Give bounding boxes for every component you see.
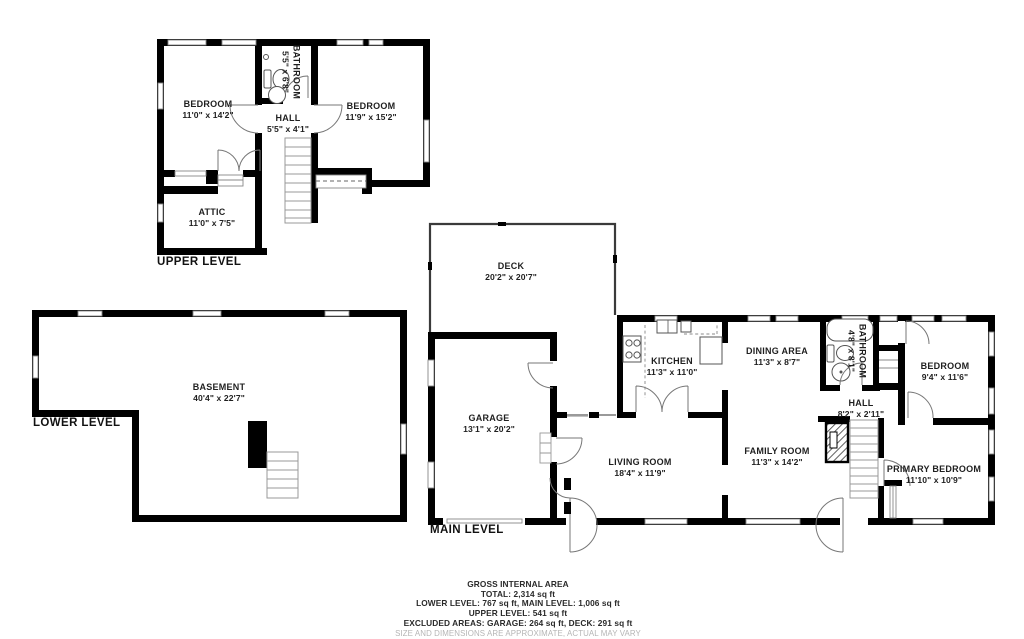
upper-level-label: UPPER LEVEL xyxy=(157,256,241,268)
room-label-main-bathroom: BATHROOM 4'8" x 8'1" xyxy=(847,324,868,378)
upper-closet xyxy=(218,175,243,186)
upper-staircase xyxy=(285,138,311,223)
room-label-dining-area: DINING AREA 11'3" x 8'7" xyxy=(746,346,808,367)
room-label-family-room: FAMILY ROOM 11'3" x 14'2" xyxy=(744,446,809,467)
area-summary-disclaimer: SIZE AND DIMENSIONS ARE APPROXIMATE, ACT… xyxy=(318,629,718,639)
room-label-main-bedroom: BEDROOM 9'4" x 11'6" xyxy=(921,361,970,382)
area-summary-excluded: EXCLUDED AREAS: GARAGE: 264 sq ft, DECK:… xyxy=(318,619,718,629)
floor-plan-canvas: BEDROOM 11'0" x 14'2" BATHROOM 5'5" x 6'… xyxy=(0,0,1024,639)
kitchen-sink-icon xyxy=(657,320,677,333)
room-label-upper-hall: HALL 5'5" x 4'1" xyxy=(267,113,309,134)
entry-steps xyxy=(540,433,551,463)
room-label-upper-bathroom: BATHROOM 5'5" x 6'8" xyxy=(281,45,302,99)
room-label-upper-bedroom-right: BEDROOM 11'9" x 15'2" xyxy=(345,101,396,122)
lower-level-walls xyxy=(32,310,407,522)
lower-level-label: LOWER LEVEL xyxy=(33,417,120,429)
lower-staircase xyxy=(267,452,298,498)
room-label-attic: ATTIC 11'0" x 7'5" xyxy=(189,207,235,228)
toilet-tank-icon xyxy=(264,70,271,88)
faucet-icon xyxy=(264,55,269,60)
room-label-garage: GARAGE 13'1" x 20'2" xyxy=(463,413,515,434)
room-label-kitchen: KITCHEN 11'3" x 11'0" xyxy=(647,356,698,377)
floor-plan-graphics xyxy=(0,0,1024,639)
room-label-living-room: LIVING ROOM 18'4" x 11'9" xyxy=(608,457,671,478)
room-label-basement: BASEMENT 40'4" x 22'7" xyxy=(193,382,246,403)
basement-chimney xyxy=(248,421,267,468)
main-fireplace xyxy=(826,423,848,462)
main-level-label: MAIN LEVEL xyxy=(430,524,504,536)
area-summary: GROSS INTERNAL AREA TOTAL: 2,314 sq ft L… xyxy=(318,580,718,638)
dishwasher-icon xyxy=(681,321,691,332)
room-label-deck: DECK 20'2" x 20'7" xyxy=(485,261,537,282)
garage-door xyxy=(447,519,522,523)
upper-bay-window xyxy=(316,175,366,188)
room-label-primary-bedroom: PRIMARY BEDROOM 11'10" x 10'9" xyxy=(887,464,981,485)
vestibule-stubs xyxy=(564,478,571,514)
main-staircase xyxy=(850,420,878,498)
fridge-icon xyxy=(700,337,722,364)
lower-level-plan xyxy=(32,310,407,522)
room-label-main-hall: HALL 8'2" x 2'11" xyxy=(838,398,884,419)
toilet-tank-icon xyxy=(827,345,834,362)
room-label-upper-bedroom-left: BEDROOM 11'0" x 14'2" xyxy=(182,99,233,120)
